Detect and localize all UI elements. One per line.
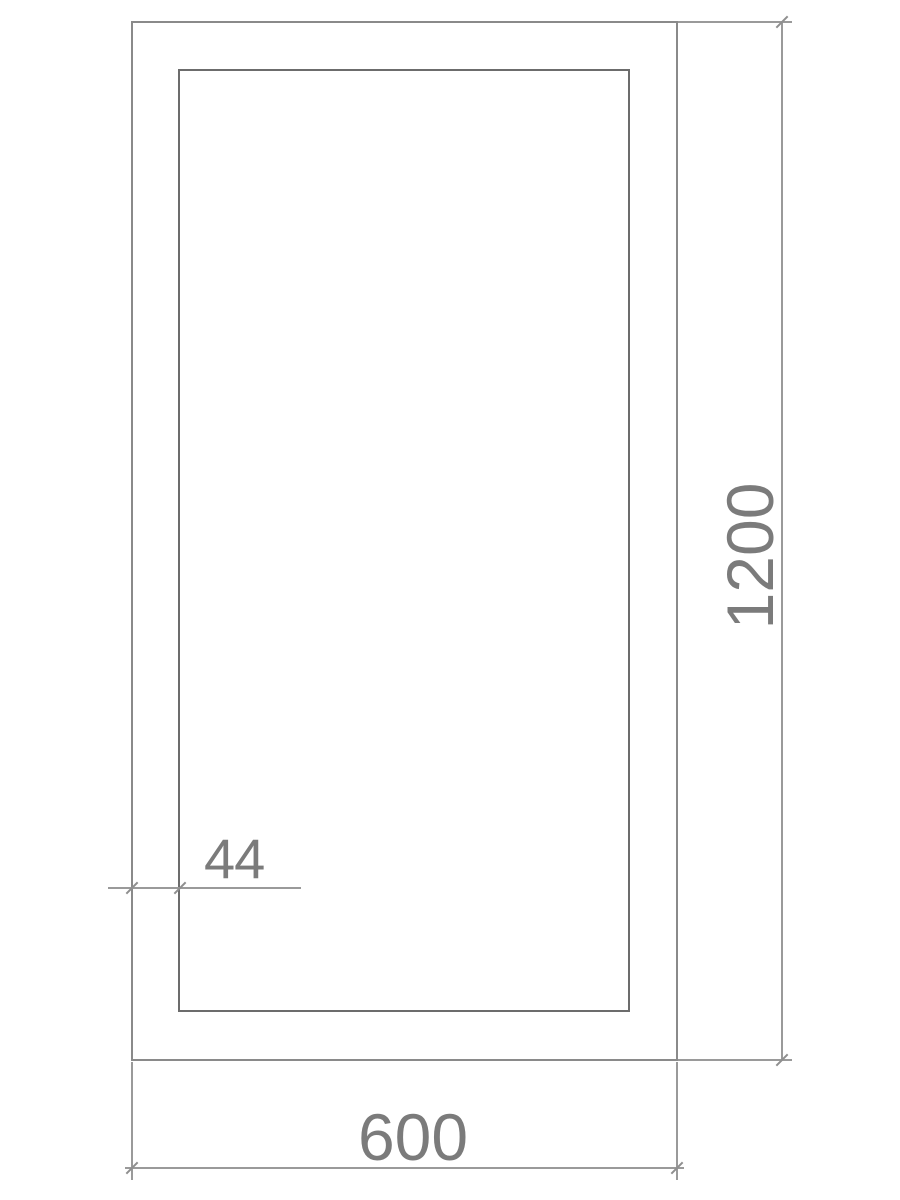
width-ext-line-right: [676, 1062, 678, 1180]
width-dim-label: 600: [338, 1104, 488, 1170]
width-ext-line-left: [131, 1062, 133, 1180]
height-ext-line-bottom: [678, 1059, 792, 1061]
height-ext-line-top: [678, 21, 792, 23]
technical-drawing-canvas: 44 600 1200: [0, 0, 900, 1200]
frame-thickness-dim-label: 44: [204, 831, 264, 887]
height-dim-label: 1200: [717, 406, 783, 706]
